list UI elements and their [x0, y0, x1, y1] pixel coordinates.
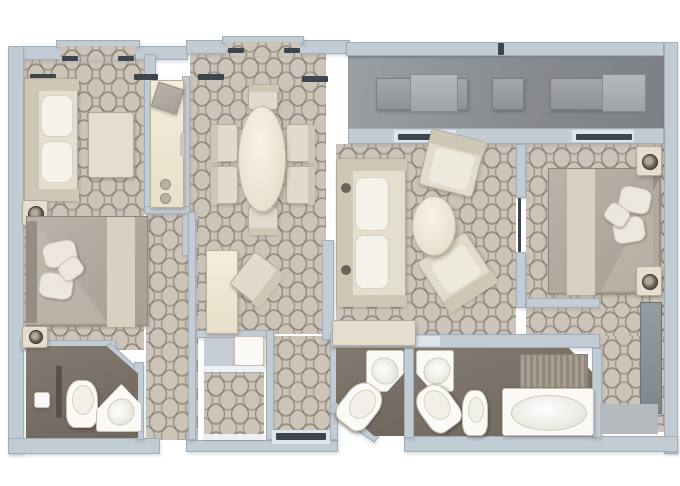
toilet1-seat [72, 385, 94, 415]
door-bath3-recess [414, 336, 440, 346]
chair-back [308, 125, 315, 163]
bed1-runner [107, 217, 135, 327]
sofa2-back [337, 159, 353, 307]
closet-carpet [204, 372, 264, 434]
bed1-headboard [27, 221, 37, 323]
bed-bedroom1 [26, 216, 148, 326]
sofa1-cushion-1 [41, 95, 73, 137]
wall-living-bedroom2-a [516, 144, 526, 198]
chair-back [211, 167, 218, 205]
wall-living-bedroom2-b [516, 252, 526, 308]
console-living [332, 320, 416, 346]
bath1-partition [56, 366, 62, 418]
chair-back [308, 167, 315, 205]
bathtub [502, 388, 594, 436]
curtain-track-4 [302, 76, 328, 82]
lamp-2 [29, 330, 43, 344]
entry-door [276, 433, 326, 440]
armchair1-seat [428, 147, 476, 192]
dining-chair-west-2 [210, 166, 238, 204]
kitchenette-counter [150, 80, 184, 208]
nightstand-3 [636, 146, 662, 176]
desk [206, 250, 238, 334]
entry-carpet [274, 336, 330, 440]
wardrobe [640, 302, 662, 414]
sink1-bowl [102, 393, 140, 431]
curtain-track-3 [198, 74, 224, 80]
bay2-track-a [228, 48, 244, 53]
dining-table [238, 106, 286, 212]
sofa2-arm-bottom [337, 295, 407, 307]
bidet [462, 390, 488, 436]
balcony-table [492, 78, 524, 110]
sofa1-arm-top [25, 79, 79, 91]
bath1-fixture-box [34, 392, 50, 408]
sofa2-foot-1 [341, 183, 351, 193]
wall-hall-east [188, 212, 196, 440]
sofa2-arm-top [337, 159, 407, 171]
tub-basin [511, 395, 587, 431]
dining-chair-east-2 [286, 166, 314, 204]
dining-chair-east-1 [286, 124, 314, 162]
bay1-track-a [62, 56, 78, 61]
kitchenette-knob-1 [160, 179, 171, 190]
sofa2-cushion-2 [355, 235, 389, 289]
sofa2-foot-2 [341, 265, 351, 275]
lamp-4 [642, 274, 658, 290]
right-wall [664, 42, 678, 454]
sofa-living [336, 158, 406, 306]
closet-shelf-band-2 [204, 434, 264, 440]
bottom-wall-left [8, 438, 160, 454]
closet-shelf-band-1 [204, 366, 264, 372]
sofa1-cushion-2 [41, 141, 73, 183]
bedroom2-gray-mat [600, 404, 658, 434]
chair-back [211, 125, 218, 163]
lounger-2-pad [602, 74, 646, 112]
kitchenette-knob-2 [160, 193, 171, 204]
toilet-bath1 [66, 380, 98, 428]
lounger-1-pad [410, 74, 458, 112]
bottom-wall-right [404, 436, 678, 452]
left-wall [8, 46, 24, 454]
coffee-table-bedroom1 [88, 112, 134, 178]
curtain-track-6 [576, 134, 632, 140]
sofa2-cushion-1 [355, 177, 389, 231]
wall-entry-west [266, 330, 274, 440]
bay2-track-b [284, 48, 300, 53]
nightstand-2 [22, 326, 48, 348]
balcony-rail [346, 42, 664, 56]
chair-back [249, 85, 279, 92]
coffee-table-living [412, 196, 456, 256]
bed2-runner [567, 169, 595, 295]
balcony-rail-notch [498, 43, 504, 55]
bidet-seat [468, 397, 484, 423]
lamp-3 [642, 154, 658, 170]
kitchenette-handle [180, 133, 184, 157]
bay1-track-b [118, 56, 134, 61]
nightstand-4 [636, 266, 662, 296]
closet-box [234, 336, 264, 366]
kitchenette-appliance [151, 81, 185, 114]
wall-bedroom2-south [526, 298, 600, 308]
wall-bath-mid [404, 348, 414, 438]
dining-chair-west-1 [210, 124, 238, 162]
floor-plan [0, 0, 680, 486]
door-bedroom2-leaf [518, 198, 521, 252]
sofa-bedroom1 [24, 78, 78, 200]
bath-tiled-ledge [520, 354, 588, 388]
sofa1-back [25, 79, 39, 201]
chair-back [249, 228, 279, 235]
